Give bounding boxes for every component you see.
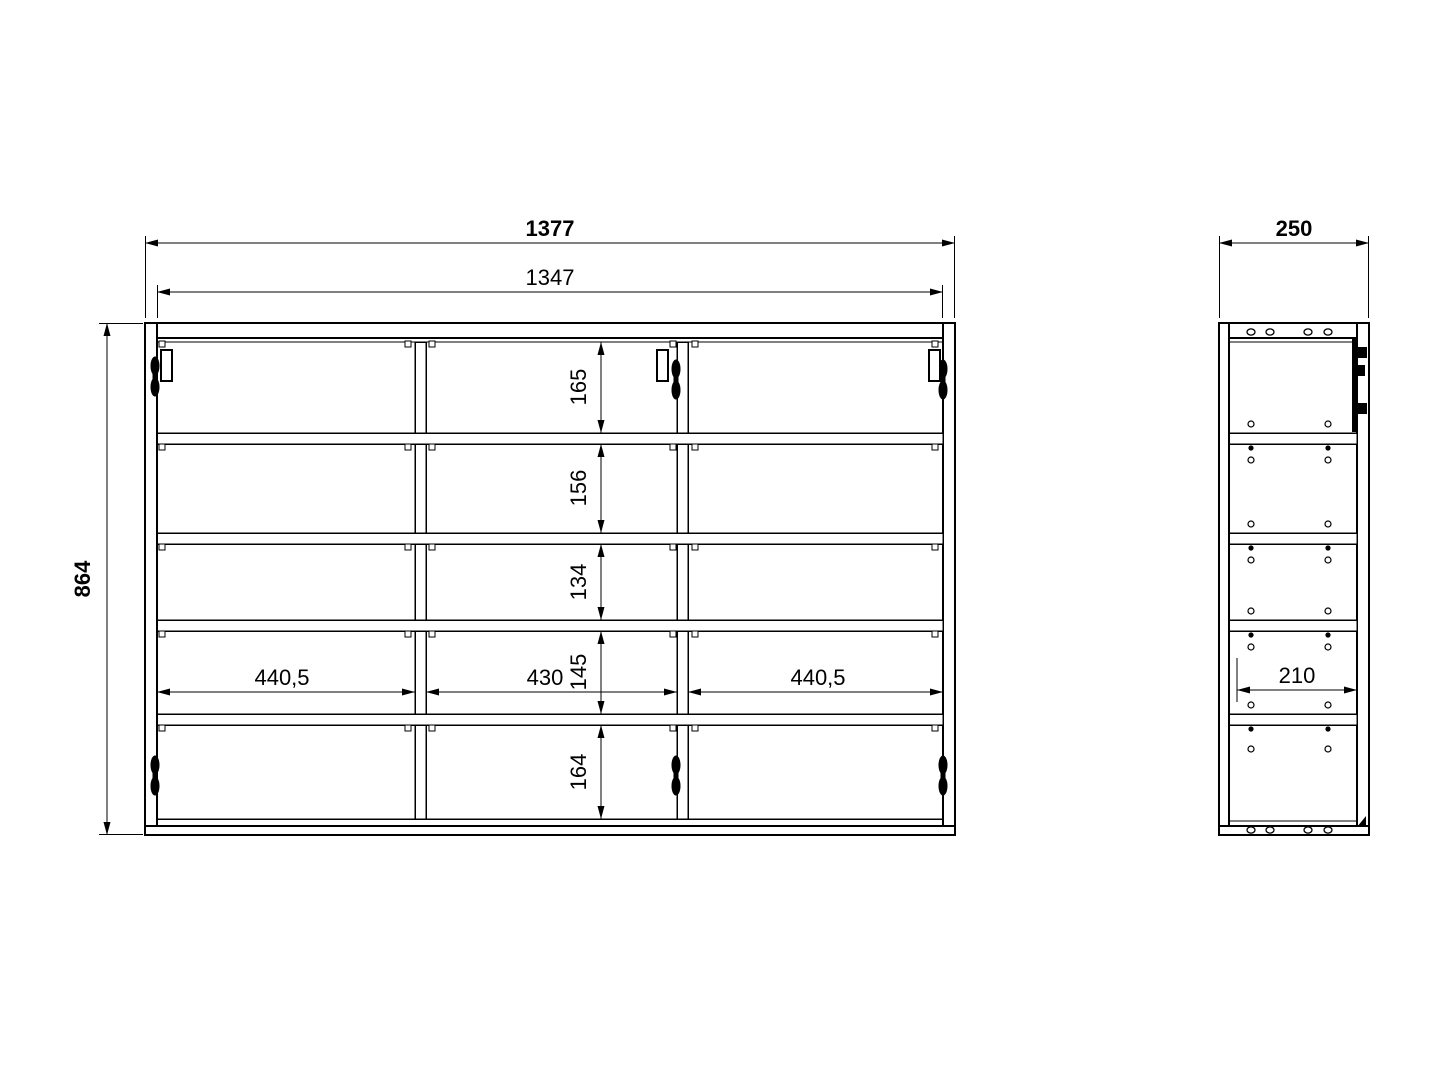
hinge-body (672, 756, 681, 775)
screw-hole (1324, 827, 1332, 833)
front-shelf-4 (157, 714, 943, 725)
shelf-pin-hole (1248, 521, 1254, 527)
shelf-support-pin (932, 444, 938, 450)
dim-compartment-middle-width-arrow (426, 689, 439, 696)
shelf-pin-hole (1325, 557, 1331, 563)
shelf-pin (1248, 726, 1253, 731)
dim-compartment-middle-width-label: 430 (527, 665, 564, 690)
shelf-support-pin (405, 725, 411, 731)
shelf-support-pin (692, 544, 698, 550)
front-top-panel (157, 323, 943, 338)
shelf-support-pin (159, 631, 165, 637)
hinge-body (939, 756, 948, 775)
shelf-support-pin (932, 631, 938, 637)
shelf-pin (1248, 632, 1253, 637)
dim-row-1-height-label: 165 (566, 369, 591, 406)
screw-hole (1324, 329, 1332, 335)
shelf-support-pin (670, 544, 676, 550)
shelf-support-pin (692, 341, 698, 347)
dim-row-1-height-arrow (598, 342, 605, 355)
shelf-support-pin (670, 444, 676, 450)
shelf-support-pin (932, 341, 938, 347)
dim-row-2-height-label: 156 (566, 470, 591, 507)
dim-front-overall-width-label: 1377 (526, 216, 575, 241)
shelf-support-pin (405, 341, 411, 347)
hinge-body (941, 772, 946, 780)
side-hinge-nub (1358, 347, 1367, 358)
shelf-pin-hole (1248, 746, 1254, 752)
shelf-support-pin (429, 725, 435, 731)
shelf-pin-hole (1325, 746, 1331, 752)
dim-compartment-right-width-arrow (688, 689, 701, 696)
shelf-pin-hole (1248, 702, 1254, 708)
dim-row-3-height-label: 134 (566, 564, 591, 601)
shelf-support-pin (405, 544, 411, 550)
dim-front-inner-width-arrow (930, 289, 943, 296)
shelf-pin (1325, 545, 1330, 550)
dim-row-4-height-arrow (598, 631, 605, 644)
shelf-support-pin (670, 631, 676, 637)
dim-row-5-height-label: 164 (566, 754, 591, 791)
dim-row-5-height-arrow (598, 725, 605, 738)
dim-row-2-height-arrow (598, 520, 605, 533)
shelf-pin-hole (1325, 702, 1331, 708)
dim-compartment-right-width-arrow (930, 689, 943, 696)
hinge-body (674, 376, 679, 384)
hinge-body (153, 772, 158, 780)
shelf-support-pin (429, 444, 435, 450)
dim-compartment-left-width-arrow (402, 689, 415, 696)
side-shelf-4 (1229, 714, 1357, 725)
shelf-support-pin (692, 725, 698, 731)
side-hinge-bar (1352, 339, 1358, 432)
shelf-support-pin (429, 341, 435, 347)
shelf-support-pin (429, 631, 435, 637)
dim-side-overall-depth-arrow (1219, 240, 1232, 247)
side-front-panel (1357, 323, 1369, 835)
side-shelf-1 (1229, 433, 1357, 444)
dim-side-overall-depth-arrow (1356, 240, 1369, 247)
dim-row-2-height-arrow (598, 444, 605, 457)
dim-compartment-middle-width-arrow (664, 689, 677, 696)
front-bottom-panel (145, 826, 955, 835)
screw-hole (1247, 827, 1255, 833)
shelf-pin-hole (1325, 457, 1331, 463)
shelf-pin-hole (1248, 608, 1254, 614)
shelf-support-pin (932, 725, 938, 731)
side-shelf-3 (1229, 620, 1357, 631)
shelf-pin-hole (1325, 421, 1331, 427)
shelf-pin-hole (1248, 457, 1254, 463)
shelf-pin (1325, 445, 1330, 450)
hinge-body (151, 756, 160, 775)
dim-side-inner-depth-label: 210 (1279, 663, 1316, 688)
dim-front-inner-width-arrow (157, 289, 170, 296)
dim-front-overall-width-arrow (942, 240, 955, 247)
shelf-pin-hole (1325, 608, 1331, 614)
shelf-pin (1325, 726, 1330, 731)
page-background: 13771347864165156134145164440,5430440,52… (0, 0, 1449, 1086)
shelf-support-pin (670, 725, 676, 731)
dim-front-overall-height-arrow (104, 323, 111, 336)
side-hinge-nub (1358, 403, 1367, 414)
dim-front-inner-width-label: 1347 (526, 265, 575, 290)
screw-hole (1304, 329, 1312, 335)
front-divider-1 (415, 342, 426, 819)
front-shelf-3 (157, 620, 943, 631)
dim-row-5-height-arrow (598, 806, 605, 819)
front-shelf-2 (157, 533, 943, 544)
dim-side-overall-depth-label: 250 (1276, 216, 1313, 241)
screw-hole (1266, 827, 1274, 833)
hinge-body (674, 772, 679, 780)
shelf-pin (1248, 445, 1253, 450)
hinge-mounting-plate (657, 350, 668, 381)
shelf-support-pin (159, 444, 165, 450)
screw-hole (1266, 329, 1274, 335)
dim-side-inner-depth-arrow (1237, 687, 1250, 694)
shelf-pin-hole (1248, 644, 1254, 650)
hinge-mounting-plate (929, 350, 940, 381)
shelf-support-pin (670, 341, 676, 347)
hinge-body (941, 376, 946, 384)
shelf-support-pin (692, 631, 698, 637)
hinge-body (153, 373, 158, 381)
dim-row-1-height-arrow (598, 420, 605, 433)
hinge-body (672, 360, 681, 379)
shelf-support-pin (692, 444, 698, 450)
hinge-body (151, 357, 160, 376)
shelf-support-pin (405, 444, 411, 450)
shelf-support-pin (159, 341, 165, 347)
dim-compartment-left-width-label: 440,5 (254, 665, 309, 690)
dim-row-4-height-arrow (598, 701, 605, 714)
dim-compartment-left-width-arrow (157, 689, 170, 696)
dim-row-3-height-arrow (598, 607, 605, 620)
screw-hole (1304, 827, 1312, 833)
shelf-pin (1248, 545, 1253, 550)
screw-hole (1247, 329, 1255, 335)
dim-front-overall-width-arrow (145, 240, 158, 247)
shelf-pin-hole (1325, 521, 1331, 527)
side-bottom-panel (1219, 826, 1369, 835)
dim-front-overall-height-label: 864 (70, 560, 95, 597)
shelf-support-pin (159, 544, 165, 550)
dim-front-overall-height-arrow (104, 822, 111, 835)
dim-side-inner-depth-arrow (1344, 687, 1357, 694)
shelf-pin (1325, 632, 1330, 637)
shelf-support-pin (405, 631, 411, 637)
shelf-support-pin (932, 544, 938, 550)
dim-row-4-height-label: 145 (566, 654, 591, 691)
dim-row-3-height-arrow (598, 544, 605, 557)
shelf-pin-hole (1325, 644, 1331, 650)
front-divider-2 (677, 342, 688, 819)
side-back-panel (1219, 323, 1229, 835)
hinge-mounting-plate (161, 350, 172, 381)
technical-drawing: 13771347864165156134145164440,5430440,52… (0, 0, 1449, 1086)
front-shelf-1 (157, 433, 943, 444)
side-hinge-nub (1358, 365, 1365, 376)
shelf-support-pin (429, 544, 435, 550)
side-shelf-2 (1229, 533, 1357, 544)
dim-compartment-right-width-label: 440,5 (790, 665, 845, 690)
shelf-support-pin (159, 725, 165, 731)
shelf-pin-hole (1248, 421, 1254, 427)
shelf-pin-hole (1248, 557, 1254, 563)
